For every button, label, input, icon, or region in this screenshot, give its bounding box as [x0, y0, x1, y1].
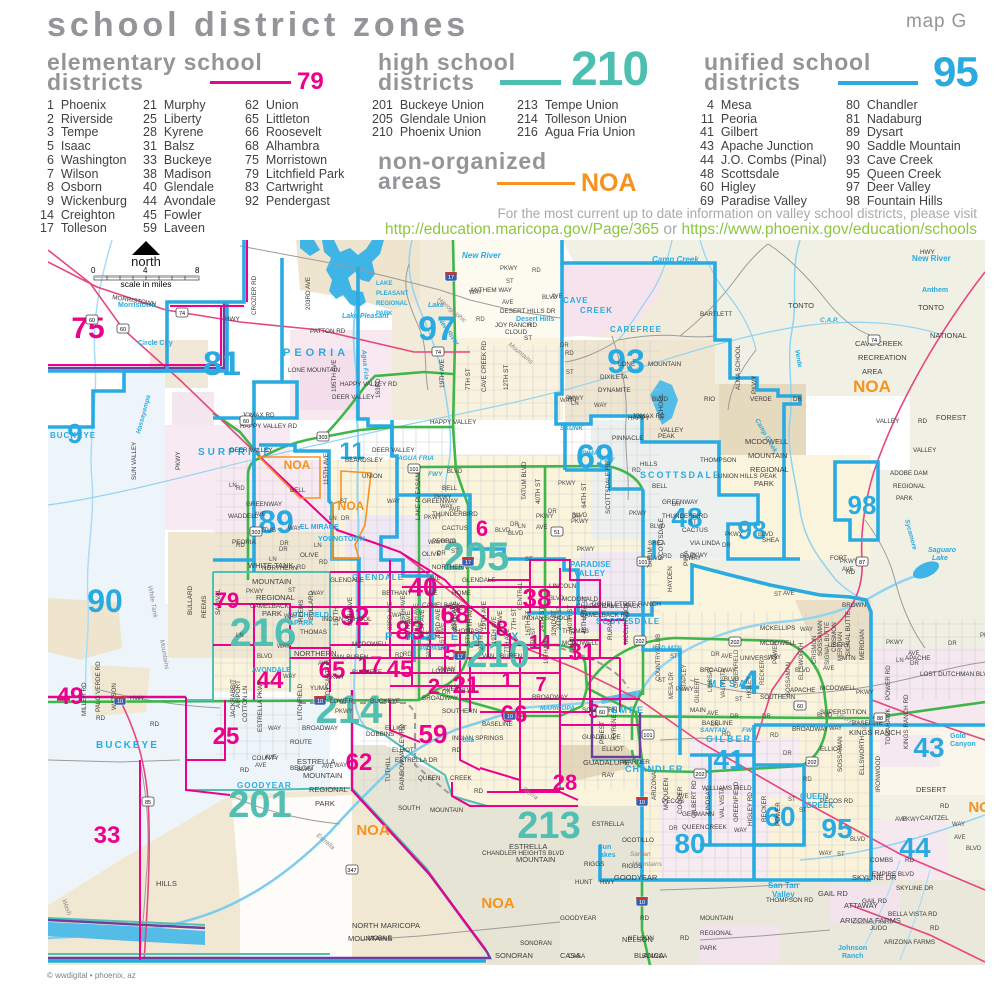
svg-text:74: 74: [435, 350, 441, 356]
svg-text:51ST AVE: 51ST AVE: [440, 623, 446, 650]
svg-text:San Tan: San Tan: [768, 881, 799, 890]
svg-text:TUTHILL: TUTHILL: [385, 756, 392, 782]
svg-text:74: 74: [871, 338, 877, 344]
svg-text:COUNTRY CLUB: COUNTRY CLUB: [656, 634, 662, 681]
svg-text:PKWY: PKWY: [840, 559, 858, 565]
svg-text:AVE: AVE: [954, 835, 966, 841]
svg-text:AVE: AVE: [429, 576, 441, 582]
svg-text:ESTRELLA: ESTRELLA: [592, 821, 625, 828]
svg-text:LOWER: LOWER: [330, 698, 354, 705]
svg-text:CAMELBACK: CAMELBACK: [250, 603, 290, 610]
svg-text:59: 59: [419, 719, 448, 749]
svg-text:NORTHERN: NORTHERN: [294, 649, 336, 658]
svg-text:POWER: POWER: [773, 641, 779, 664]
svg-text:303: 303: [251, 530, 260, 536]
svg-text:LOST DUTCHMAN BLVD: LOST DUTCHMAN BLVD: [920, 671, 992, 678]
svg-text:KINGS RANCH: KINGS RANCH: [849, 728, 901, 737]
svg-text:PKWY: PKWY: [246, 589, 264, 595]
svg-text:RD: RD: [236, 543, 245, 549]
svg-text:HUNT: HUNT: [575, 879, 593, 886]
svg-text:Oddfield Mtns: Oddfield Mtns: [852, 919, 893, 926]
svg-text:Ranch: Ranch: [842, 953, 863, 960]
svg-text:HAYDEN: HAYDEN: [667, 566, 674, 592]
svg-text:LN: LN: [896, 658, 904, 664]
svg-text:RD: RD: [770, 733, 779, 739]
svg-text:ALMA SCHOOL: ALMA SCHOOL: [735, 344, 742, 390]
svg-text:RD: RD: [905, 857, 915, 864]
svg-text:LINDSAY: LINDSAY: [705, 787, 712, 814]
svg-text:32ND ST: 32ND ST: [570, 627, 576, 652]
svg-text:lakes: lakes: [598, 852, 616, 859]
svg-text:CHANDLER HEIGHTS BLVD: CHANDLER HEIGHTS BLVD: [482, 850, 565, 857]
svg-text:TONTO: TONTO: [918, 303, 944, 312]
svg-text:CACTUS: CACTUS: [682, 527, 708, 534]
svg-text:FWY: FWY: [742, 727, 757, 734]
svg-text:DOBBINS: DOBBINS: [366, 731, 394, 738]
svg-text:107TH: 107TH: [333, 607, 340, 626]
svg-text:VERDE: VERDE: [750, 396, 772, 403]
svg-text:BASELINE: BASELINE: [482, 721, 513, 728]
svg-text:ADOBE DAM: ADOBE DAM: [890, 470, 928, 477]
svg-text:303: 303: [318, 435, 327, 441]
svg-text:PEAK: PEAK: [760, 473, 778, 480]
svg-text:DR: DR: [793, 396, 803, 403]
svg-text:SCOTTSDALE: SCOTTSDALE: [640, 470, 721, 480]
svg-text:LN: LN: [329, 516, 337, 522]
svg-text:GAIL RD: GAIL RD: [818, 889, 848, 898]
svg-text:DR: DR: [730, 714, 739, 720]
svg-text:SOSSAMAN: SOSSAMAN: [786, 662, 792, 696]
svg-text:Camp Creek: Camp Creek: [652, 255, 699, 264]
svg-text:Lake: Lake: [932, 555, 948, 562]
svg-text:60: 60: [243, 419, 249, 425]
svg-text:BUCKEYE: BUCKEYE: [50, 431, 96, 440]
svg-text:51: 51: [554, 530, 560, 536]
svg-text:RD: RD: [297, 565, 306, 571]
svg-text:Johnson: Johnson: [838, 945, 867, 952]
svg-text:HWY: HWY: [920, 249, 935, 256]
svg-text:BELL: BELL: [442, 485, 458, 492]
svg-text:MILLER RD: MILLER RD: [81, 682, 88, 716]
svg-text:BLVD: BLVD: [966, 846, 982, 852]
svg-text:BLVD: BLVD: [460, 688, 476, 694]
svg-text:BEARDSLEY: BEARDSLEY: [345, 457, 384, 464]
svg-text:MAIN: MAIN: [690, 707, 706, 714]
svg-text:38: 38: [523, 583, 552, 613]
svg-text:AVE: AVE: [536, 525, 548, 531]
svg-text:CACTUS: CACTUS: [442, 525, 468, 532]
svg-text:FWY: FWY: [428, 471, 443, 478]
svg-text:0: 0: [91, 266, 96, 275]
svg-text:27TH AVE: 27TH AVE: [479, 622, 485, 650]
svg-text:PKWY: PKWY: [751, 375, 758, 394]
svg-text:LN: LN: [711, 722, 719, 728]
svg-text:PINNACLE: PINNACLE: [612, 435, 644, 442]
svg-text:PALO VERDE RD: PALO VERDE RD: [95, 661, 102, 712]
svg-text:CREEK: CREEK: [450, 775, 472, 782]
svg-text:MCCLINTOCK: MCCLINTOCK: [623, 602, 630, 644]
svg-text:COTTON LN: COTTON LN: [242, 685, 249, 722]
svg-text:VALLEY: VALLEY: [574, 569, 606, 578]
svg-text:BLVD: BLVD: [817, 713, 833, 719]
svg-text:Circle City: Circle City: [138, 340, 173, 347]
svg-text:RD: RD: [640, 915, 650, 922]
svg-text:BLANCA: BLANCA: [642, 953, 668, 960]
svg-text:CAVE CREEK RD: CAVE CREEK RD: [481, 341, 488, 392]
svg-text:RD: RD: [474, 788, 484, 795]
svg-text:RD: RD: [680, 935, 690, 942]
svg-text:VAL VISTA: VAL VISTA: [721, 669, 727, 698]
svg-text:RD: RD: [528, 322, 538, 329]
svg-text:SIGNAL BUTTE: SIGNAL BUTTE: [845, 611, 852, 656]
svg-text:LN: LN: [229, 483, 237, 489]
svg-text:SHEA: SHEA: [762, 537, 780, 544]
svg-text:PKWY: PKWY: [558, 481, 576, 487]
svg-text:WAY: WAY: [594, 403, 607, 409]
svg-text:DIXILETA: DIXILETA: [600, 374, 628, 381]
svg-text:MOUNTAIN: MOUNTAIN: [700, 915, 734, 922]
svg-text:7: 7: [535, 674, 546, 696]
svg-text:DR: DR: [437, 551, 446, 557]
svg-text:MCQUEEN: MCQUEEN: [663, 777, 670, 810]
svg-text:DR: DR: [948, 641, 957, 647]
svg-text:67TH AVE: 67TH AVE: [414, 603, 420, 631]
svg-text:LN: LN: [518, 524, 526, 530]
svg-text:MOUNTAIN: MOUNTAIN: [748, 451, 787, 460]
svg-text:GILBERT: GILBERT: [706, 734, 760, 744]
svg-text:CRISMON: CRISMON: [812, 636, 818, 664]
svg-text:19TH AVE: 19TH AVE: [439, 359, 446, 388]
svg-text:SARIVAL: SARIVAL: [215, 588, 222, 615]
svg-text:10: 10: [117, 699, 123, 705]
svg-text:BUCKEYE: BUCKEYE: [370, 698, 400, 705]
svg-text:AVE: AVE: [783, 591, 795, 597]
svg-text:REEMS: REEMS: [298, 600, 305, 622]
svg-text:RD: RD: [452, 747, 462, 754]
svg-text:RD: RD: [663, 554, 672, 560]
svg-text:AREA: AREA: [862, 367, 882, 376]
svg-text:AVE: AVE: [265, 755, 277, 761]
svg-text:RURAL: RURAL: [607, 618, 614, 640]
svg-text:FWY: FWY: [600, 457, 615, 464]
svg-text:AVE: AVE: [551, 294, 563, 300]
svg-text:MARICOPA: MARICOPA: [540, 705, 575, 712]
svg-text:RIGGS: RIGGS: [584, 861, 604, 868]
svg-text:VALLEY: VALLEY: [913, 447, 937, 454]
svg-text:60: 60: [89, 318, 95, 324]
svg-text:POWER: POWER: [775, 802, 782, 826]
svg-text:Canyon: Canyon: [950, 741, 976, 748]
svg-text:43RD AVE: 43RD AVE: [453, 604, 459, 632]
svg-text:CROZIER RD: CROZIER RD: [251, 275, 258, 315]
svg-text:AVE: AVE: [322, 764, 334, 770]
svg-text:40TH ST: 40TH ST: [567, 605, 574, 630]
svg-text:UNION: UNION: [362, 473, 383, 480]
svg-text:WAY: WAY: [311, 591, 324, 597]
svg-text:POWER RD: POWER RD: [885, 665, 892, 700]
svg-text:HIGLEY: HIGLEY: [747, 676, 753, 698]
svg-text:HWY: HWY: [600, 879, 615, 886]
svg-text:BLVD: BLVD: [257, 654, 273, 660]
svg-text:MOUNTAIN: MOUNTAIN: [252, 577, 291, 586]
svg-text:HAPPY VALLEY RD: HAPPY VALLEY RD: [340, 381, 398, 388]
svg-text:CANTZEL: CANTZEL: [920, 815, 949, 822]
svg-text:MCDONALD: MCDONALD: [562, 596, 598, 603]
svg-text:60: 60: [120, 327, 126, 333]
svg-text:60: 60: [797, 704, 803, 710]
svg-text:BUCKEYE: BUCKEYE: [352, 669, 382, 676]
svg-text:PKWY: PKWY: [438, 667, 456, 673]
svg-text:PARK: PARK: [896, 495, 913, 502]
svg-text:BARTLETT: BARTLETT: [700, 311, 732, 318]
svg-text:JOY RANCH: JOY RANCH: [495, 322, 532, 329]
svg-text:28: 28: [553, 770, 577, 795]
svg-text:AGUA FRIA: AGUA FRIA: [397, 455, 434, 462]
svg-text:RD: RD: [236, 486, 245, 492]
svg-text:RD: RD: [565, 351, 574, 357]
svg-text:DR: DR: [910, 661, 919, 667]
svg-text:VAN: VAN: [482, 653, 495, 660]
svg-text:CAVE: CAVE: [563, 296, 589, 305]
svg-text:RD: RD: [803, 777, 812, 783]
svg-text:12TH ST: 12TH ST: [503, 365, 510, 390]
svg-text:101: 101: [409, 467, 418, 473]
svg-text:HWY: HWY: [225, 316, 240, 323]
svg-text:AVE: AVE: [677, 794, 689, 800]
svg-text:BUREN: BUREN: [500, 653, 522, 660]
svg-text:PRIEST: PRIEST: [599, 721, 606, 744]
svg-text:83RD AVE: 83RD AVE: [388, 602, 394, 630]
svg-text:89: 89: [258, 504, 294, 540]
svg-text:CASA: CASA: [568, 953, 586, 960]
svg-text:RD: RD: [240, 767, 250, 774]
svg-text:WAY: WAY: [277, 644, 290, 650]
svg-text:202: 202: [807, 760, 816, 766]
svg-text:HOME: HOME: [452, 590, 471, 597]
svg-text:PKWY: PKWY: [500, 266, 518, 272]
svg-text:RD: RD: [918, 418, 928, 425]
svg-text:ELLSWORTH: ELLSWORTH: [799, 643, 805, 680]
svg-text:4: 4: [143, 266, 148, 275]
svg-text:347: 347: [347, 868, 356, 874]
svg-text:ARIZONA FARMS: ARIZONA FARMS: [884, 939, 935, 946]
svg-text:PKWY: PKWY: [434, 495, 452, 501]
svg-text:GREENFIELD: GREENFIELD: [734, 649, 740, 688]
svg-text:DR: DR: [722, 543, 731, 549]
svg-text:PLEASANT: PLEASANT: [376, 291, 409, 297]
svg-text:SCOTTSDALE RD: SCOTTSDALE RD: [605, 461, 612, 514]
svg-text:PKWY: PKWY: [335, 709, 353, 715]
svg-text:ST: ST: [837, 852, 845, 858]
svg-text:THOMAS: THOMAS: [300, 629, 327, 636]
svg-text:MESA DR: MESA DR: [669, 671, 675, 699]
svg-text:7TH AVE: 7TH AVE: [505, 629, 511, 653]
svg-text:AVE: AVE: [721, 654, 733, 660]
svg-text:BROADWAY: BROADWAY: [302, 725, 339, 732]
svg-text:AVE: AVE: [426, 591, 438, 597]
svg-text:SOUTHERN: SOUTHERN: [442, 708, 478, 715]
svg-text:7TH ST: 7TH ST: [511, 608, 518, 630]
svg-text:AVE: AVE: [502, 300, 514, 306]
svg-text:AIRPORT: AIRPORT: [235, 680, 242, 708]
svg-text:RAY: RAY: [602, 772, 615, 779]
svg-text:RD: RD: [722, 732, 731, 738]
svg-text:BROADWAY: BROADWAY: [422, 695, 459, 702]
svg-text:OCOTILLO: OCOTILLO: [622, 837, 654, 844]
svg-text:201: 201: [228, 784, 291, 826]
svg-text:NORTHERN: NORTHERN: [262, 565, 298, 572]
svg-text:ELLSWORTH: ELLSWORTH: [859, 735, 866, 775]
svg-text:PARK: PARK: [700, 945, 717, 952]
svg-text:ROUTE: ROUTE: [290, 739, 312, 746]
svg-text:1: 1: [501, 670, 512, 692]
svg-text:NOA: NOA: [968, 799, 999, 816]
svg-text:80: 80: [674, 828, 705, 859]
svg-text:BLVD: BLVD: [297, 767, 313, 773]
svg-text:6: 6: [476, 516, 488, 541]
svg-text:BLVD: BLVD: [508, 531, 524, 537]
svg-text:41: 41: [713, 744, 744, 775]
svg-text:MOBILE: MOBILE: [368, 935, 392, 942]
svg-text:INDIAN SPRINGS: INDIAN SPRINGS: [452, 735, 503, 742]
svg-text:JUDO: JUDO: [870, 925, 887, 932]
svg-text:REGIONAL: REGIONAL: [376, 301, 408, 307]
svg-text:VALLEY: VALLEY: [876, 418, 900, 425]
svg-text:GILBERT: GILBERT: [695, 677, 701, 703]
svg-text:WAY: WAY: [800, 627, 813, 633]
svg-text:LN: LN: [325, 696, 333, 702]
svg-text:RIO: RIO: [704, 396, 715, 403]
svg-text:43: 43: [913, 732, 944, 763]
svg-text:PKWY: PKWY: [577, 547, 595, 553]
svg-text:AVE: AVE: [318, 661, 330, 667]
svg-text:WAY: WAY: [952, 822, 965, 828]
svg-text:DR: DR: [560, 343, 569, 349]
svg-text:Gold: Gold: [950, 733, 966, 740]
svg-text:RD: RD: [96, 715, 106, 722]
svg-text:LN: LN: [236, 633, 244, 639]
svg-text:101: 101: [643, 733, 652, 739]
svg-text:98: 98: [848, 490, 877, 520]
svg-text:10: 10: [639, 900, 645, 906]
svg-text:AVE: AVE: [823, 666, 835, 672]
svg-text:7TH ST: 7TH ST: [465, 368, 472, 390]
svg-text:WAY: WAY: [829, 726, 842, 732]
svg-text:KYRENE: KYRENE: [611, 714, 618, 740]
svg-text:59TH AVE: 59TH AVE: [427, 630, 433, 658]
svg-text:62: 62: [346, 749, 373, 776]
svg-text:DR: DR: [672, 502, 681, 508]
svg-text:LINDSAY: LINDSAY: [708, 667, 714, 692]
svg-text:85: 85: [145, 800, 151, 806]
svg-text:ST: ST: [566, 370, 574, 376]
svg-text:35TH AVE: 35TH AVE: [466, 619, 472, 647]
svg-text:PEORIA: PEORIA: [283, 347, 349, 359]
svg-text:Santan: Santan: [630, 851, 651, 858]
svg-text:ST: ST: [524, 335, 532, 342]
svg-text:SOSSAMAN: SOSSAMAN: [817, 620, 824, 656]
svg-text:PKWY: PKWY: [327, 675, 345, 681]
svg-text:ST: ST: [451, 549, 459, 555]
svg-text:RAINBOW VALLEY RD: RAINBOW VALLEY RD: [399, 724, 406, 790]
svg-text:RD: RD: [632, 468, 641, 474]
svg-text:SOSSAMAN: SOSSAMAN: [837, 736, 844, 772]
svg-text:10: 10: [507, 714, 513, 720]
svg-text:ST: ST: [340, 499, 348, 505]
svg-text:BROADWAY: BROADWAY: [700, 667, 737, 674]
svg-text:87: 87: [859, 560, 865, 566]
svg-text:ST: ST: [506, 279, 514, 285]
svg-text:PECOS RD: PECOS RD: [820, 798, 853, 805]
svg-text:17: 17: [457, 654, 463, 660]
svg-text:BLVD: BLVD: [447, 469, 463, 475]
svg-text:LN: LN: [314, 543, 322, 549]
svg-text:DYNAMITE: DYNAMITE: [598, 387, 631, 394]
svg-text:EL MIRAGE: EL MIRAGE: [300, 524, 339, 531]
svg-text:81: 81: [203, 345, 241, 383]
svg-text:74: 74: [179, 311, 185, 317]
svg-text:DYSART: DYSART: [325, 669, 332, 695]
svg-text:PKWY: PKWY: [424, 515, 442, 521]
svg-text:LN: LN: [571, 401, 579, 407]
svg-text:75TH AVE: 75TH AVE: [401, 595, 407, 623]
svg-text:ST: ST: [735, 697, 743, 703]
svg-text:7TH ST: 7TH ST: [531, 627, 537, 648]
svg-text:PARK: PARK: [754, 479, 774, 488]
svg-text:DR: DR: [669, 826, 678, 832]
svg-text:SCHOOL: SCHOOL: [658, 393, 665, 420]
svg-text:MOUNTAIN: MOUNTAIN: [430, 807, 464, 814]
svg-text:WARNER: WARNER: [622, 759, 650, 766]
svg-text:DR: DR: [341, 516, 350, 522]
svg-text:LN: LN: [269, 557, 277, 563]
svg-text:SUN VALLEY: SUN VALLEY: [131, 441, 138, 480]
svg-text:HAPPY VALLEY: HAPPY VALLEY: [430, 419, 477, 426]
svg-text:WAY: WAY: [288, 526, 301, 532]
svg-text:213: 213: [517, 805, 580, 847]
svg-text:202: 202: [730, 640, 739, 646]
svg-text:TATUM BLVD: TATUM BLVD: [521, 461, 528, 500]
svg-text:RD: RD: [476, 317, 485, 323]
svg-text:DEER VALLEY: DEER VALLEY: [230, 447, 273, 454]
svg-text:RECREATION: RECREATION: [858, 353, 907, 362]
svg-text:UNION HILLS: UNION HILLS: [718, 473, 758, 480]
svg-text:AVE: AVE: [895, 817, 907, 823]
svg-text:LAKE PLEASANT: LAKE PLEASANT: [415, 469, 422, 520]
svg-text:REGIONAL: REGIONAL: [309, 785, 348, 794]
svg-text:WAY: WAY: [284, 614, 297, 620]
svg-text:QUEEN: QUEEN: [418, 775, 441, 782]
svg-text:PIMA: PIMA: [582, 450, 599, 457]
svg-text:BLVD: BLVD: [758, 532, 774, 538]
svg-text:RD: RD: [150, 721, 160, 728]
svg-text:ST: ST: [774, 592, 782, 598]
svg-text:GOODYEAR: GOODYEAR: [237, 781, 292, 790]
svg-text:BLVD: BLVD: [572, 513, 588, 519]
svg-text:PKWY: PKWY: [856, 690, 874, 696]
svg-text:NOA: NOA: [481, 895, 515, 912]
svg-text:RD: RD: [940, 803, 950, 810]
svg-text:New River: New River: [462, 251, 502, 260]
svg-text:ARIZONA: ARIZONA: [651, 771, 658, 800]
svg-text:10: 10: [317, 699, 323, 705]
svg-text:202: 202: [635, 639, 644, 645]
svg-text:195TH AVE: 195TH AVE: [331, 360, 338, 392]
svg-text:PARK: PARK: [376, 311, 393, 317]
svg-text:NOA: NOA: [853, 377, 891, 396]
svg-text:PKWY: PKWY: [886, 640, 904, 646]
svg-text:25: 25: [213, 723, 240, 750]
